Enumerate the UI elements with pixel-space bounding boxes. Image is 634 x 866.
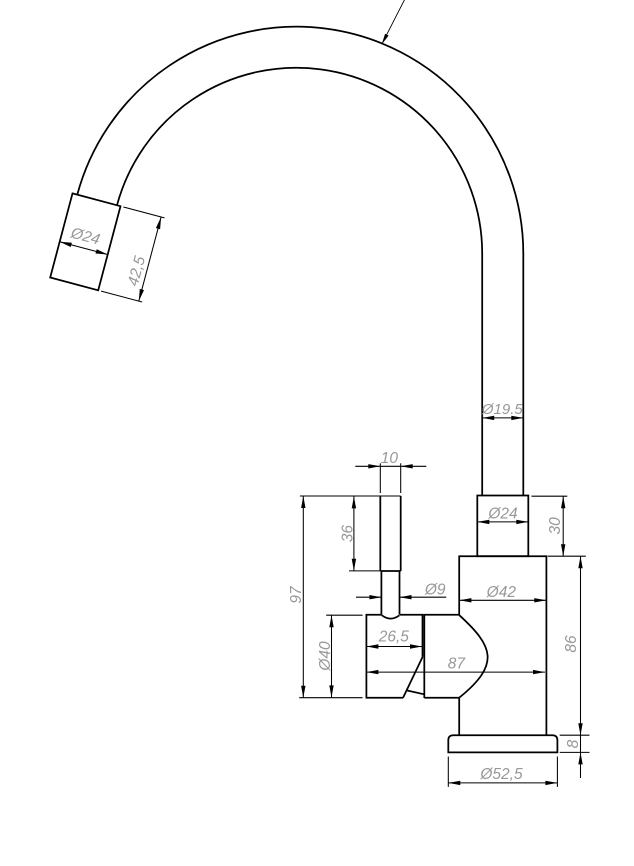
svg-text:8: 8 (565, 739, 582, 748)
svg-text:26,5: 26,5 (378, 628, 410, 645)
svg-text:Ø9: Ø9 (424, 582, 446, 599)
svg-text:Ø42: Ø42 (486, 584, 517, 601)
svg-text:30: 30 (547, 517, 564, 535)
svg-text:97: 97 (288, 585, 305, 604)
svg-text:10: 10 (381, 450, 399, 467)
svg-text:87: 87 (448, 656, 467, 673)
svg-text:Ø52,5: Ø52,5 (479, 766, 523, 783)
svg-text:86: 86 (563, 635, 580, 653)
svg-text:Ø24: Ø24 (487, 505, 518, 522)
svg-text:36: 36 (339, 525, 356, 543)
svg-text:Ø19.5: Ø19.5 (481, 401, 524, 418)
svg-text:Ø40: Ø40 (317, 641, 334, 672)
